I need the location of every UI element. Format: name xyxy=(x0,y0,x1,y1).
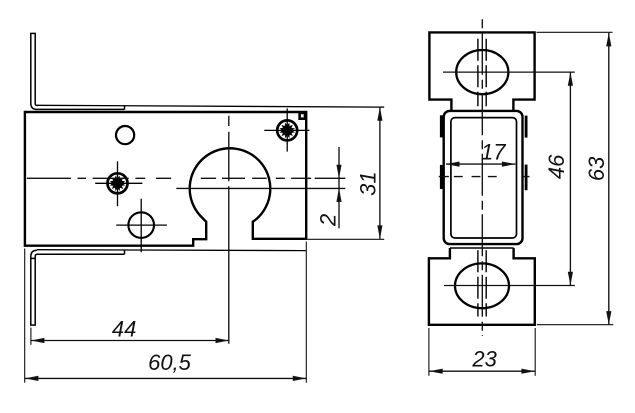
svg-text:23: 23 xyxy=(471,347,497,372)
svg-text:2: 2 xyxy=(316,214,341,227)
svg-text:60,5: 60,5 xyxy=(148,350,192,375)
svg-text:63: 63 xyxy=(584,156,609,181)
svg-text:17: 17 xyxy=(481,140,506,165)
svg-text:46: 46 xyxy=(544,154,569,179)
svg-text:44: 44 xyxy=(112,317,136,342)
svg-text:31: 31 xyxy=(355,171,380,195)
